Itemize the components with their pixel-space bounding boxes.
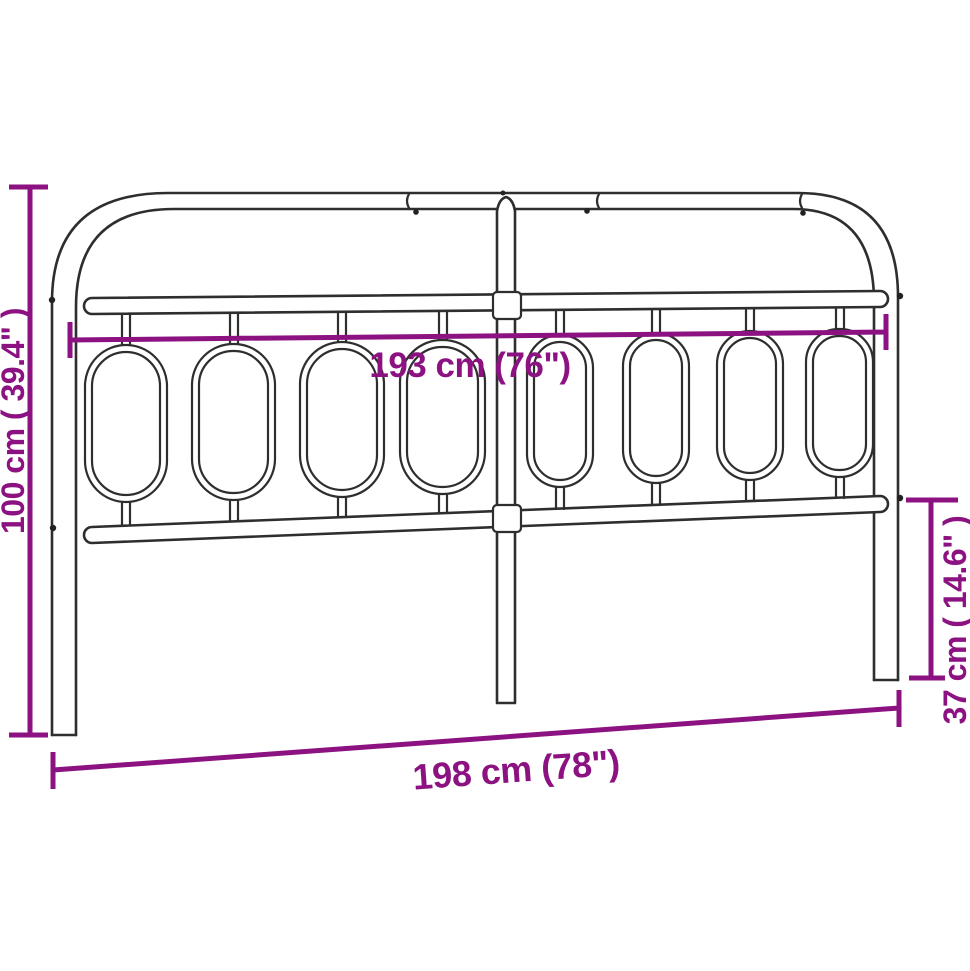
- oval-panel-6: [623, 333, 689, 483]
- top-rail-joint-marks: [407, 194, 802, 208]
- height-total-label: 100 cm ( 39.4" ): [0, 308, 31, 534]
- headboard-dimension-diagram: 100 cm ( 39.4" ) 193 cm (76") 37 cm ( 14…: [0, 0, 970, 971]
- post-bracket-lower: [493, 505, 521, 532]
- dimension-height-total: 100 cm ( 39.4" ): [0, 187, 48, 735]
- upper-rail: [84, 291, 888, 314]
- headboard-drawing: [49, 191, 903, 736]
- oval-panel-8: [806, 329, 873, 477]
- dimension-width-outer: 198 cm (78"): [53, 690, 899, 798]
- width-inner-label: 193 cm (76"): [369, 346, 570, 385]
- height-lower-label: 37 cm ( 14.6" ): [937, 516, 970, 725]
- oval-panel-1: [85, 345, 167, 502]
- oval-panel-7: [717, 331, 783, 480]
- post-bracket-upper: [493, 292, 521, 319]
- oval-panel-2: [192, 344, 275, 500]
- dimension-height-lower: 37 cm ( 14.6" ): [906, 500, 970, 724]
- center-post: [497, 197, 515, 703]
- lower-rail: [84, 496, 888, 543]
- product-dimension-image: 100 cm ( 39.4" ) 193 cm (76") 37 cm ( 14…: [0, 0, 970, 971]
- width-outer-label: 198 cm (78"): [411, 742, 621, 798]
